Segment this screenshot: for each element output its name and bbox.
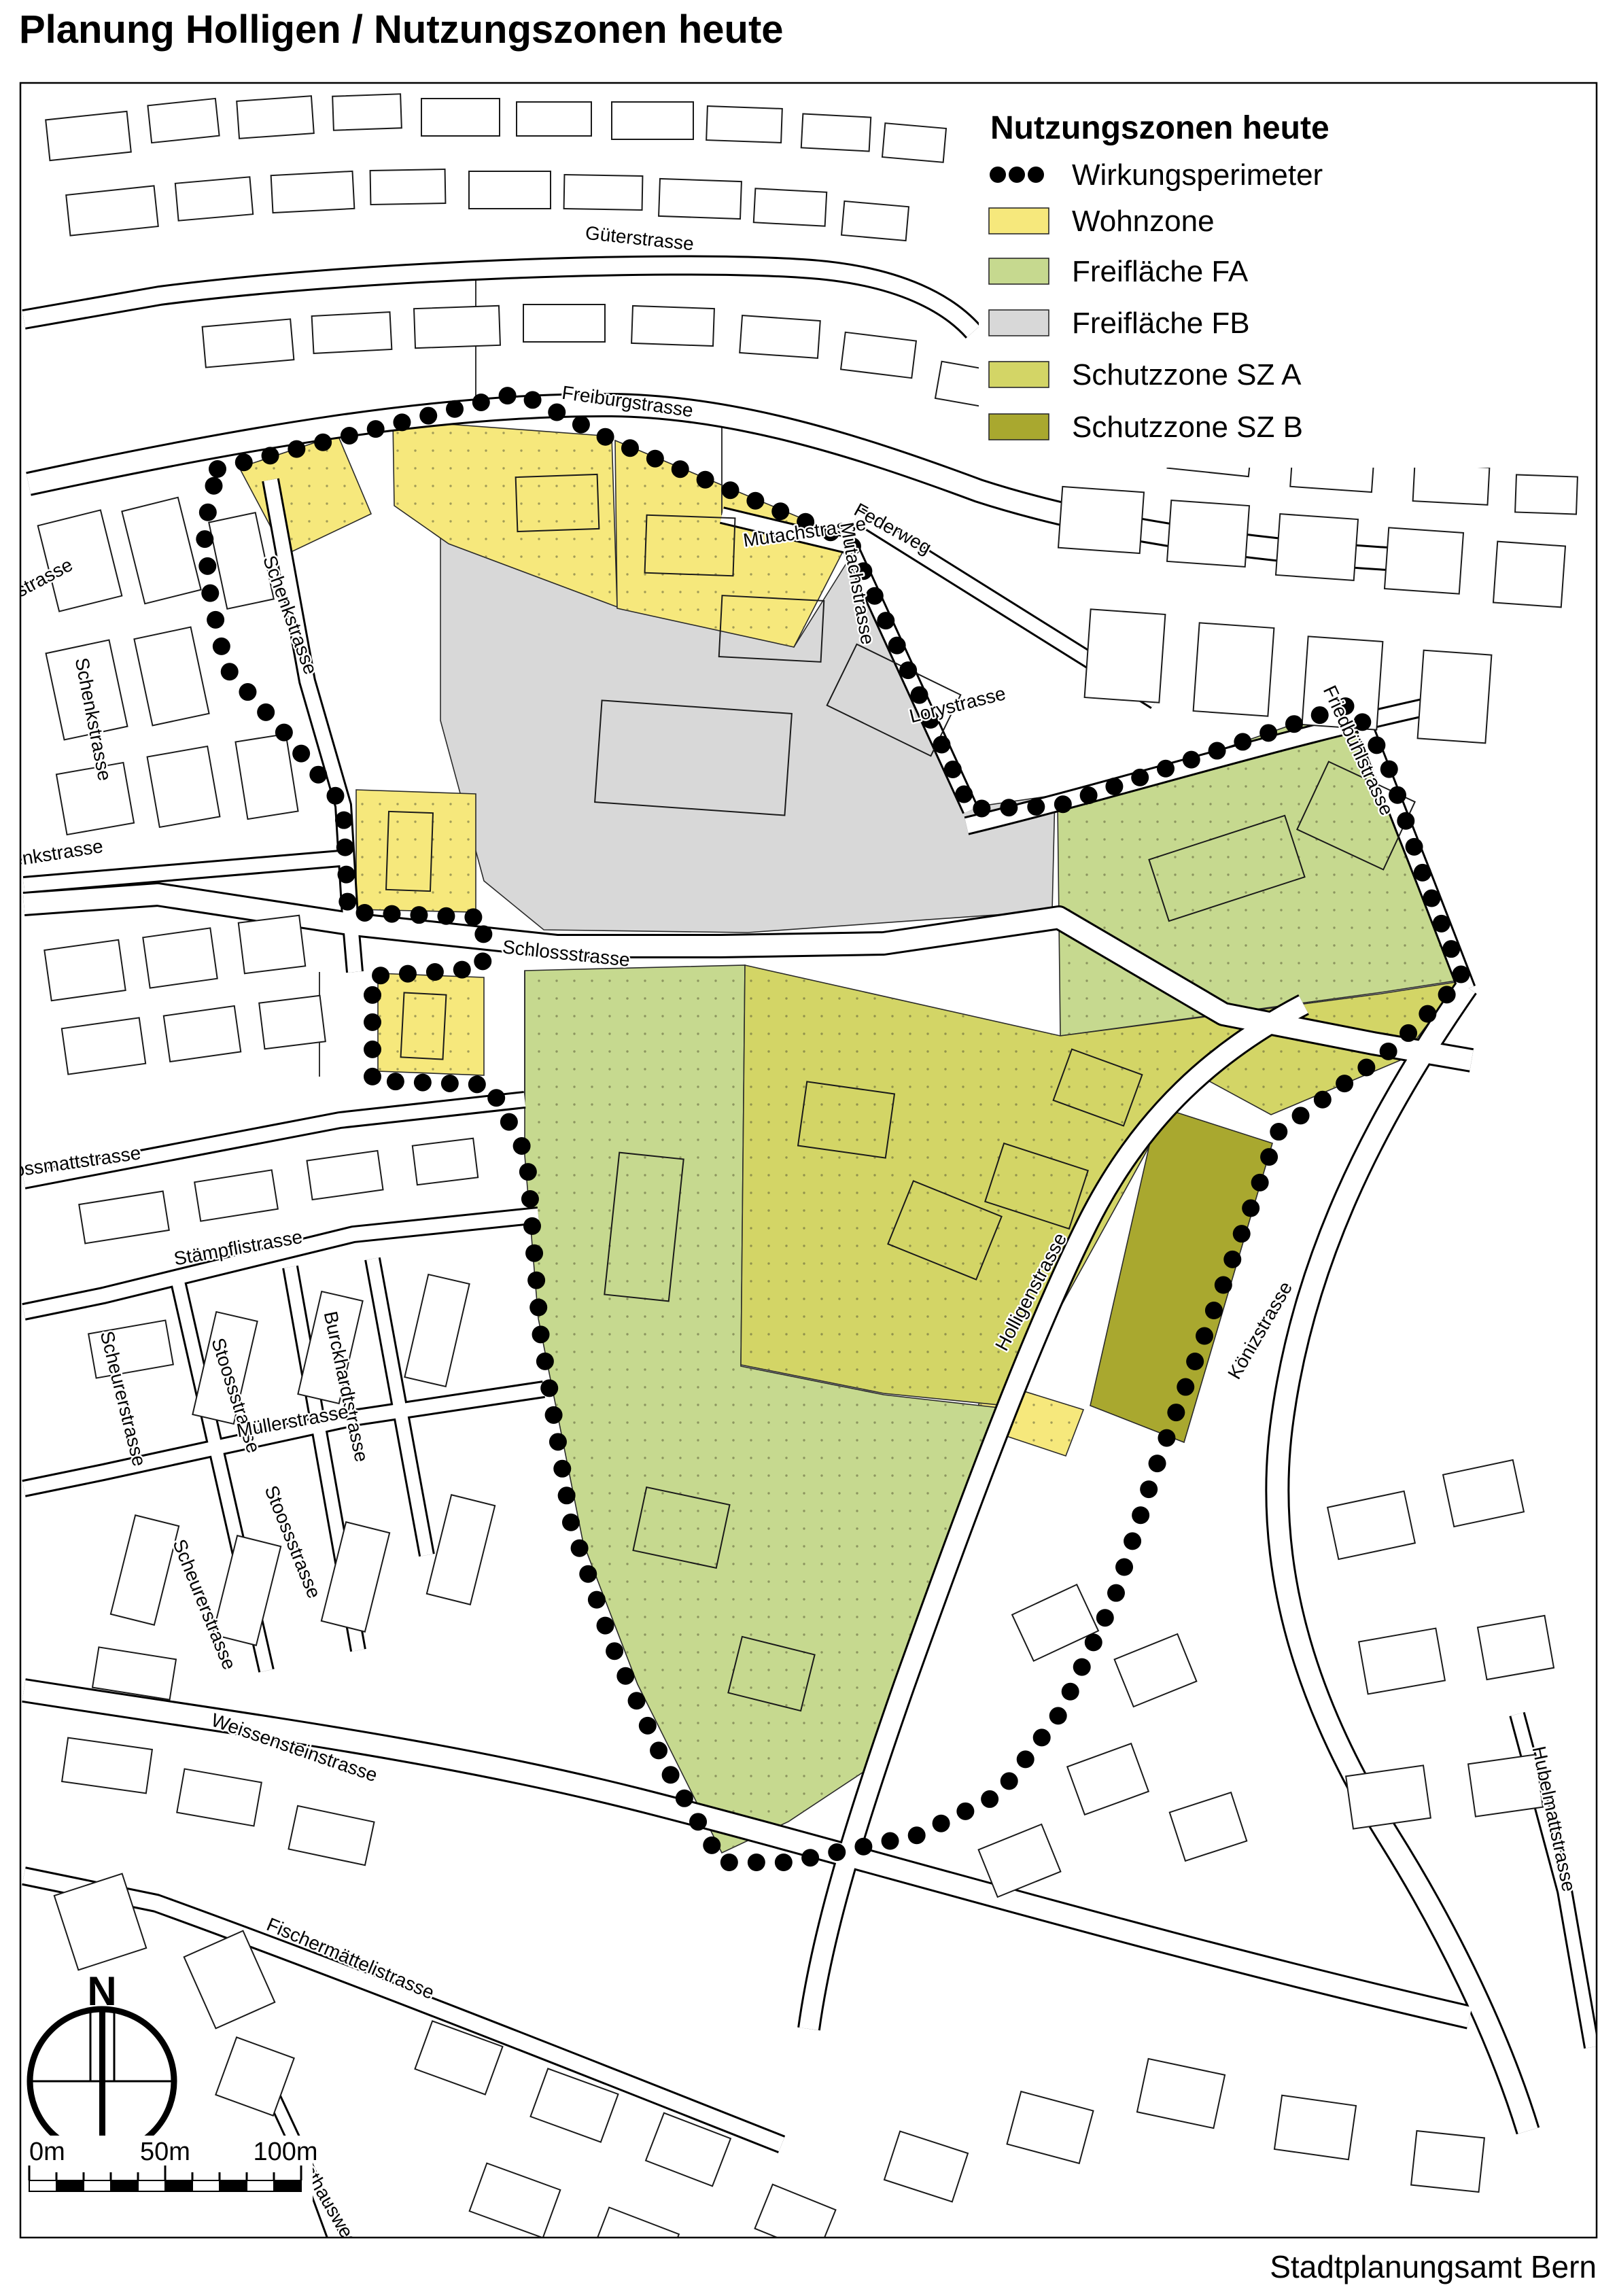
building-footprint bbox=[1418, 650, 1492, 744]
perimeter-dot bbox=[1186, 1353, 1204, 1370]
perimeter-dot bbox=[1433, 915, 1450, 933]
building-footprint bbox=[66, 186, 158, 235]
perimeter-dot bbox=[524, 391, 542, 408]
perimeter-dot bbox=[597, 428, 614, 446]
scale-segment bbox=[220, 2180, 247, 2191]
perimeter-dot bbox=[1314, 1091, 1332, 1109]
perimeter-dot bbox=[882, 1832, 899, 1850]
building-footprint bbox=[237, 96, 314, 139]
scale-segment bbox=[138, 2180, 165, 2191]
perimeter-dot bbox=[1033, 1728, 1051, 1746]
perimeter-dot bbox=[1399, 1024, 1417, 1042]
perimeter-dot bbox=[500, 1113, 518, 1131]
perimeter-dot bbox=[1242, 1200, 1259, 1217]
perimeter-dot bbox=[1124, 1532, 1141, 1550]
building-footprint bbox=[164, 1006, 241, 1062]
perimeter-dot bbox=[372, 967, 389, 984]
perimeter-dot bbox=[364, 1013, 381, 1031]
legend-label: Schutzzone SZ B bbox=[1072, 411, 1303, 444]
perimeter-dot bbox=[275, 724, 293, 742]
perimeter-dot bbox=[1285, 715, 1303, 733]
perimeter-dot bbox=[453, 961, 471, 979]
perimeter-dot bbox=[1096, 1609, 1114, 1627]
perimeter-dot bbox=[1049, 1707, 1067, 1724]
scale-label: 0m bbox=[29, 2138, 65, 2166]
perimeter-dot bbox=[519, 1163, 537, 1181]
legend-item-freiflaeche_fa: Freifläche FA bbox=[989, 255, 1249, 288]
perimeter-dot bbox=[393, 413, 411, 431]
perimeter-dot bbox=[1336, 1075, 1353, 1092]
building-footprint bbox=[194, 1170, 278, 1221]
building-footprint bbox=[235, 734, 298, 819]
street-label: Güterstrasse bbox=[585, 222, 695, 255]
perimeter-dot bbox=[650, 1741, 667, 1759]
building-footprint bbox=[413, 1138, 478, 1185]
perimeter-dot bbox=[529, 1298, 547, 1316]
building-footprint bbox=[1007, 2091, 1094, 2163]
building-footprint bbox=[1515, 474, 1578, 514]
building-footprint bbox=[1115, 1634, 1197, 1707]
perimeter-dot bbox=[472, 394, 490, 411]
perimeter-dot bbox=[367, 420, 385, 438]
perimeter-dot bbox=[414, 1074, 432, 1092]
building-footprint bbox=[564, 175, 643, 210]
perimeter-dot bbox=[748, 1854, 765, 1871]
building-footprint bbox=[312, 312, 392, 353]
perimeter-dot bbox=[292, 745, 310, 763]
perimeter-dot bbox=[499, 387, 517, 404]
perimeter-dot bbox=[672, 460, 689, 478]
perimeter-dot bbox=[213, 638, 230, 655]
scale-segment bbox=[56, 2180, 84, 2191]
perimeter-dot bbox=[335, 812, 353, 829]
perimeter-dot bbox=[338, 893, 356, 911]
perimeter-dot bbox=[899, 661, 917, 679]
legend-item-wohnzone: Wohnzone bbox=[989, 205, 1215, 238]
perimeter-dot bbox=[523, 1217, 541, 1235]
perimeter-dot bbox=[1027, 798, 1045, 816]
perimeter-dot bbox=[257, 703, 275, 721]
perimeter-dot bbox=[548, 404, 566, 421]
building-footprint bbox=[755, 2185, 836, 2254]
zoning-map: GüterstrasseFreiburgstrasseMutachstrasse… bbox=[0, 0, 1617, 2296]
building-footprint bbox=[1443, 1460, 1524, 1527]
perimeter-dot bbox=[1167, 1404, 1185, 1421]
perimeter-dot bbox=[1107, 1584, 1125, 1602]
perimeter-dot bbox=[1062, 1683, 1079, 1701]
legend-item-schutzzone_b: Schutzzone SZ B bbox=[989, 411, 1303, 444]
building-footprint bbox=[592, 2208, 679, 2279]
building-footprint bbox=[612, 102, 693, 139]
legend-swatch-freiflaeche_fb bbox=[989, 310, 1049, 336]
building-footprint bbox=[1478, 1616, 1554, 1680]
building-footprint bbox=[1359, 1629, 1445, 1694]
building-footprint bbox=[134, 627, 209, 726]
perimeter-dot bbox=[536, 1353, 554, 1370]
legend-label: Freifläche FB bbox=[1072, 307, 1250, 340]
building-footprint bbox=[1067, 1743, 1149, 1815]
perimeter-dot bbox=[703, 1837, 720, 1854]
building-footprint bbox=[1012, 1584, 1098, 1660]
perimeter-dot bbox=[419, 407, 437, 425]
legend-title: Nutzungszonen heute bbox=[990, 110, 1329, 146]
building-footprint bbox=[147, 99, 219, 143]
legend: Nutzungszonen heuteWirkungsperimeterWohn… bbox=[979, 86, 1595, 468]
perimeter-dot bbox=[562, 1514, 580, 1531]
legend-perimeter-dot bbox=[1009, 167, 1025, 183]
scale-segment bbox=[274, 2180, 301, 2191]
zone-dots-wohnzone-4 bbox=[356, 790, 476, 912]
building-footprint bbox=[307, 1151, 383, 1200]
perimeter-dot bbox=[676, 1790, 693, 1807]
perimeter-dot bbox=[1233, 1225, 1251, 1242]
perimeter-dot bbox=[326, 787, 344, 805]
scale-segment bbox=[192, 2180, 220, 2191]
perimeter-dot bbox=[1292, 1107, 1310, 1124]
perimeter-dot bbox=[527, 1272, 545, 1289]
building-footprint bbox=[1085, 609, 1166, 702]
road-fill-muellerstrasse bbox=[24, 1389, 544, 1489]
perimeter-dot bbox=[521, 1190, 539, 1208]
perimeter-dot bbox=[908, 1826, 926, 1844]
perimeter-dot bbox=[545, 1406, 563, 1424]
road-casing-koenizstrasse bbox=[1277, 987, 1528, 2131]
building-footprint bbox=[523, 305, 605, 342]
building-footprint bbox=[1194, 623, 1274, 716]
building-footprint bbox=[1346, 1765, 1431, 1828]
road-fill-schenkstrasse-horiz bbox=[24, 858, 348, 885]
scale-label: 50m bbox=[140, 2138, 190, 2166]
building-footprint bbox=[1170, 1792, 1247, 1861]
building-footprint bbox=[706, 106, 782, 143]
building-footprint bbox=[147, 746, 220, 827]
perimeter-dot bbox=[1205, 1302, 1223, 1319]
perimeter-dot bbox=[888, 637, 906, 655]
perimeter-dot bbox=[1270, 1123, 1287, 1141]
perimeter-dot bbox=[205, 477, 223, 495]
building-footprint bbox=[1058, 487, 1144, 553]
perimeter-dot bbox=[1140, 1480, 1158, 1498]
compass-north-label: N bbox=[87, 1968, 116, 2014]
perimeter-dot bbox=[262, 447, 279, 464]
perimeter-dot bbox=[1105, 778, 1123, 795]
building-footprint bbox=[332, 94, 402, 130]
perimeter-dot bbox=[410, 906, 428, 924]
building-footprint bbox=[841, 332, 916, 378]
perimeter-dot bbox=[441, 1075, 459, 1092]
perimeter-dot bbox=[288, 440, 305, 458]
building-footprint bbox=[62, 1017, 145, 1074]
building-footprint bbox=[203, 319, 294, 367]
building-footprint bbox=[740, 315, 820, 358]
perimeter-dot bbox=[383, 905, 400, 923]
perimeter-dot bbox=[437, 907, 455, 925]
perimeter-dot bbox=[549, 1433, 567, 1450]
perimeter-dot bbox=[1414, 864, 1431, 882]
perimeter-dot bbox=[1223, 1251, 1241, 1268]
perimeter-dot bbox=[474, 952, 491, 970]
perimeter-dot bbox=[1357, 1059, 1375, 1077]
legend-swatch-wohnzone bbox=[989, 208, 1049, 234]
perimeter-dot bbox=[933, 1815, 950, 1832]
compass-rose: N bbox=[30, 1968, 174, 2153]
legend-swatch-schutzzone_a bbox=[989, 362, 1049, 387]
perimeter-dot bbox=[1380, 1043, 1397, 1060]
perimeter-dot bbox=[1054, 795, 1072, 813]
perimeter-dot bbox=[1251, 1174, 1269, 1192]
legend-perimeter-dot bbox=[990, 167, 1006, 183]
perimeter-dot bbox=[207, 611, 224, 629]
building-footprint bbox=[884, 2132, 968, 2202]
perimeter-dot bbox=[540, 1379, 558, 1397]
building-footprint bbox=[239, 916, 305, 973]
building-footprint bbox=[46, 111, 131, 160]
perimeter-dot bbox=[314, 434, 332, 451]
perimeter-dot bbox=[558, 1486, 576, 1504]
scale-segment bbox=[165, 2180, 192, 2191]
perimeter-dot bbox=[1177, 1378, 1194, 1396]
perimeter-dot bbox=[1132, 1506, 1149, 1524]
scale-bar: 0m50m100m bbox=[23, 2136, 318, 2204]
perimeter-dot bbox=[1001, 1772, 1018, 1790]
perimeter-dot bbox=[854, 1838, 872, 1856]
building-footprint bbox=[44, 940, 125, 1001]
perimeter-dot bbox=[1000, 799, 1018, 816]
perimeter-dot bbox=[646, 450, 664, 468]
attribution: Stadtplanungsamt Bern bbox=[1270, 2248, 1597, 2285]
legend-label: Wirkungsperimeter bbox=[1072, 158, 1323, 192]
perimeter-dot bbox=[956, 1803, 974, 1820]
perimeter-dot bbox=[571, 1540, 589, 1557]
perimeter-dot bbox=[201, 585, 219, 602]
perimeter-dot bbox=[356, 904, 374, 922]
perimeter-dot bbox=[553, 1460, 571, 1478]
perimeter-dot bbox=[426, 963, 444, 981]
perimeter-dot bbox=[720, 1854, 738, 1871]
building-footprint bbox=[404, 1274, 469, 1387]
building-footprint bbox=[469, 171, 551, 209]
scale-label: 100m bbox=[253, 2138, 317, 2166]
perimeter-dot bbox=[221, 663, 239, 680]
perimeter-dot bbox=[933, 736, 950, 754]
perimeter-dot bbox=[309, 766, 327, 784]
building-footprint bbox=[1276, 514, 1358, 580]
perimeter-dot bbox=[721, 481, 739, 499]
perimeter-dot bbox=[955, 785, 973, 803]
building-footprint bbox=[1327, 1491, 1415, 1559]
perimeter-dot bbox=[1397, 812, 1414, 830]
perimeter-dot bbox=[572, 416, 590, 434]
perimeter-dot bbox=[588, 1591, 606, 1609]
perimeter-dot bbox=[1260, 1148, 1278, 1166]
perimeter-dot bbox=[1423, 890, 1440, 907]
building-footprint bbox=[1274, 2095, 1356, 2160]
legend-swatch-schutzzone_b bbox=[989, 414, 1049, 440]
perimeter-dot bbox=[1073, 1658, 1091, 1676]
perimeter-dot bbox=[199, 504, 217, 521]
legend-item-freiflaeche_fb: Freifläche FB bbox=[989, 307, 1250, 340]
perimeter-dot bbox=[1149, 1455, 1166, 1472]
legend-label: Freifläche FA bbox=[1072, 255, 1249, 288]
building-footprint bbox=[177, 1769, 262, 1826]
perimeter-dot bbox=[464, 908, 482, 926]
building-footprint bbox=[111, 1515, 179, 1625]
perimeter-dot bbox=[621, 439, 639, 457]
perimeter-dot bbox=[775, 1854, 793, 1871]
building-footprint bbox=[427, 1495, 495, 1605]
perimeter-dot bbox=[525, 1245, 543, 1262]
perimeter-dot bbox=[235, 453, 253, 471]
perimeter-dot bbox=[198, 557, 216, 575]
road-fill-koenizstrasse bbox=[1277, 987, 1528, 2131]
perimeter-dot bbox=[697, 471, 714, 489]
building-footprint bbox=[659, 179, 742, 219]
perimeter-dot bbox=[338, 866, 355, 884]
perimeter-dot bbox=[579, 1565, 597, 1583]
building-footprint bbox=[259, 996, 326, 1049]
building-footprint bbox=[79, 1192, 169, 1244]
legend-perimeter-dot bbox=[1028, 167, 1044, 183]
compass-needle bbox=[99, 2009, 105, 2153]
scale-segment bbox=[29, 2180, 56, 2191]
building-footprint bbox=[517, 102, 591, 136]
perimeter-dot bbox=[532, 1325, 550, 1343]
building-footprint bbox=[288, 1806, 374, 1865]
perimeter-dot bbox=[639, 1717, 657, 1735]
legend-item-schutzzone_a: Schutzzone SZ A bbox=[989, 358, 1302, 392]
perimeter-dot bbox=[628, 1692, 646, 1709]
perimeter-dot bbox=[336, 839, 354, 856]
building-footprint bbox=[370, 169, 446, 205]
perimeter-dot bbox=[606, 1642, 623, 1660]
perimeter-dot bbox=[877, 612, 894, 629]
perimeter-dot bbox=[944, 761, 962, 778]
perimeter-dot bbox=[1183, 751, 1200, 769]
perimeter-dot bbox=[487, 1089, 505, 1107]
perimeter-dot bbox=[1085, 1633, 1102, 1651]
legend-label: Wohnzone bbox=[1072, 205, 1215, 238]
building-footprint bbox=[1413, 464, 1490, 505]
building-footprint bbox=[1385, 527, 1463, 593]
building-footprint bbox=[801, 114, 871, 151]
perimeter-dot bbox=[828, 1843, 846, 1861]
street-label: Schenkstrasse bbox=[0, 835, 105, 875]
perimeter-dot bbox=[1259, 724, 1277, 742]
building-footprint bbox=[414, 306, 500, 348]
perimeter-dot bbox=[689, 1813, 707, 1830]
building-footprint bbox=[1493, 542, 1565, 608]
perimeter-dot bbox=[1442, 940, 1460, 958]
building-footprint bbox=[122, 498, 201, 604]
legend-label: Schutzzone SZ A bbox=[1072, 358, 1302, 392]
building-footprint bbox=[38, 510, 122, 611]
perimeter-dot bbox=[209, 460, 226, 478]
scale-segment bbox=[247, 2180, 274, 2191]
perimeter-dot bbox=[239, 683, 256, 701]
perimeter-dot bbox=[1215, 1276, 1232, 1294]
perimeter-dot bbox=[1438, 986, 1456, 1003]
perimeter-dot bbox=[597, 1617, 614, 1635]
building-footprint bbox=[175, 177, 253, 220]
perimeter-dot bbox=[1080, 786, 1098, 804]
perimeter-dot bbox=[387, 1073, 404, 1090]
perimeter-dot bbox=[973, 799, 990, 817]
building-footprint bbox=[421, 99, 500, 136]
perimeter-dot bbox=[364, 1041, 381, 1058]
perimeter-dot bbox=[662, 1766, 680, 1784]
perimeter-dot bbox=[1452, 966, 1470, 984]
building-footprint bbox=[1411, 2131, 1484, 2192]
legend-swatch-freiflaeche_fa bbox=[989, 258, 1049, 284]
perimeter-dot bbox=[1380, 761, 1398, 778]
scale-segment bbox=[84, 2180, 111, 2191]
perimeter-dot bbox=[446, 400, 464, 418]
perimeter-dot bbox=[1131, 769, 1149, 786]
perimeter-dot bbox=[1406, 838, 1423, 856]
perimeter-dot bbox=[468, 1075, 486, 1093]
zone-dots-wohnzone-5 bbox=[378, 973, 484, 1075]
building-footprint bbox=[470, 2163, 561, 2238]
perimeter-dot bbox=[616, 1667, 634, 1685]
perimeter-dot bbox=[341, 427, 358, 445]
building-footprint bbox=[62, 1738, 152, 1794]
perimeter-dot bbox=[196, 530, 213, 548]
perimeter-dot bbox=[1158, 1429, 1175, 1447]
perimeter-dot bbox=[746, 492, 764, 510]
building-footprint bbox=[1137, 2059, 1225, 2128]
perimeter-dot bbox=[771, 502, 789, 520]
perimeter-dot bbox=[474, 925, 492, 943]
perimeter-dot bbox=[1017, 1750, 1034, 1768]
perimeter-dot bbox=[1311, 706, 1329, 724]
perimeter-dot bbox=[364, 986, 381, 1004]
page: Planung Holligen / Nutzungszonen heute G… bbox=[0, 0, 1617, 2296]
building-footprint bbox=[143, 928, 217, 988]
perimeter-dot bbox=[801, 1849, 819, 1866]
perimeter-dot bbox=[1196, 1327, 1213, 1345]
perimeter-dot bbox=[364, 1068, 381, 1085]
perimeter-dot bbox=[1234, 733, 1251, 750]
building-footprint bbox=[631, 306, 714, 346]
building-footprint bbox=[841, 201, 909, 241]
building-footprint bbox=[1167, 500, 1249, 567]
perimeter-dot bbox=[1115, 1559, 1133, 1576]
building-footprint bbox=[271, 171, 355, 213]
perimeter-dot bbox=[399, 965, 417, 983]
perimeter-dot bbox=[1419, 1005, 1436, 1023]
perimeter-dot bbox=[981, 1790, 998, 1808]
perimeter-dot bbox=[513, 1137, 531, 1155]
building-footprint bbox=[882, 123, 946, 162]
perimeter-dot bbox=[1157, 760, 1175, 778]
perimeter-dot bbox=[1209, 742, 1226, 760]
scale-segment bbox=[111, 2180, 138, 2191]
building-footprint bbox=[754, 188, 827, 226]
